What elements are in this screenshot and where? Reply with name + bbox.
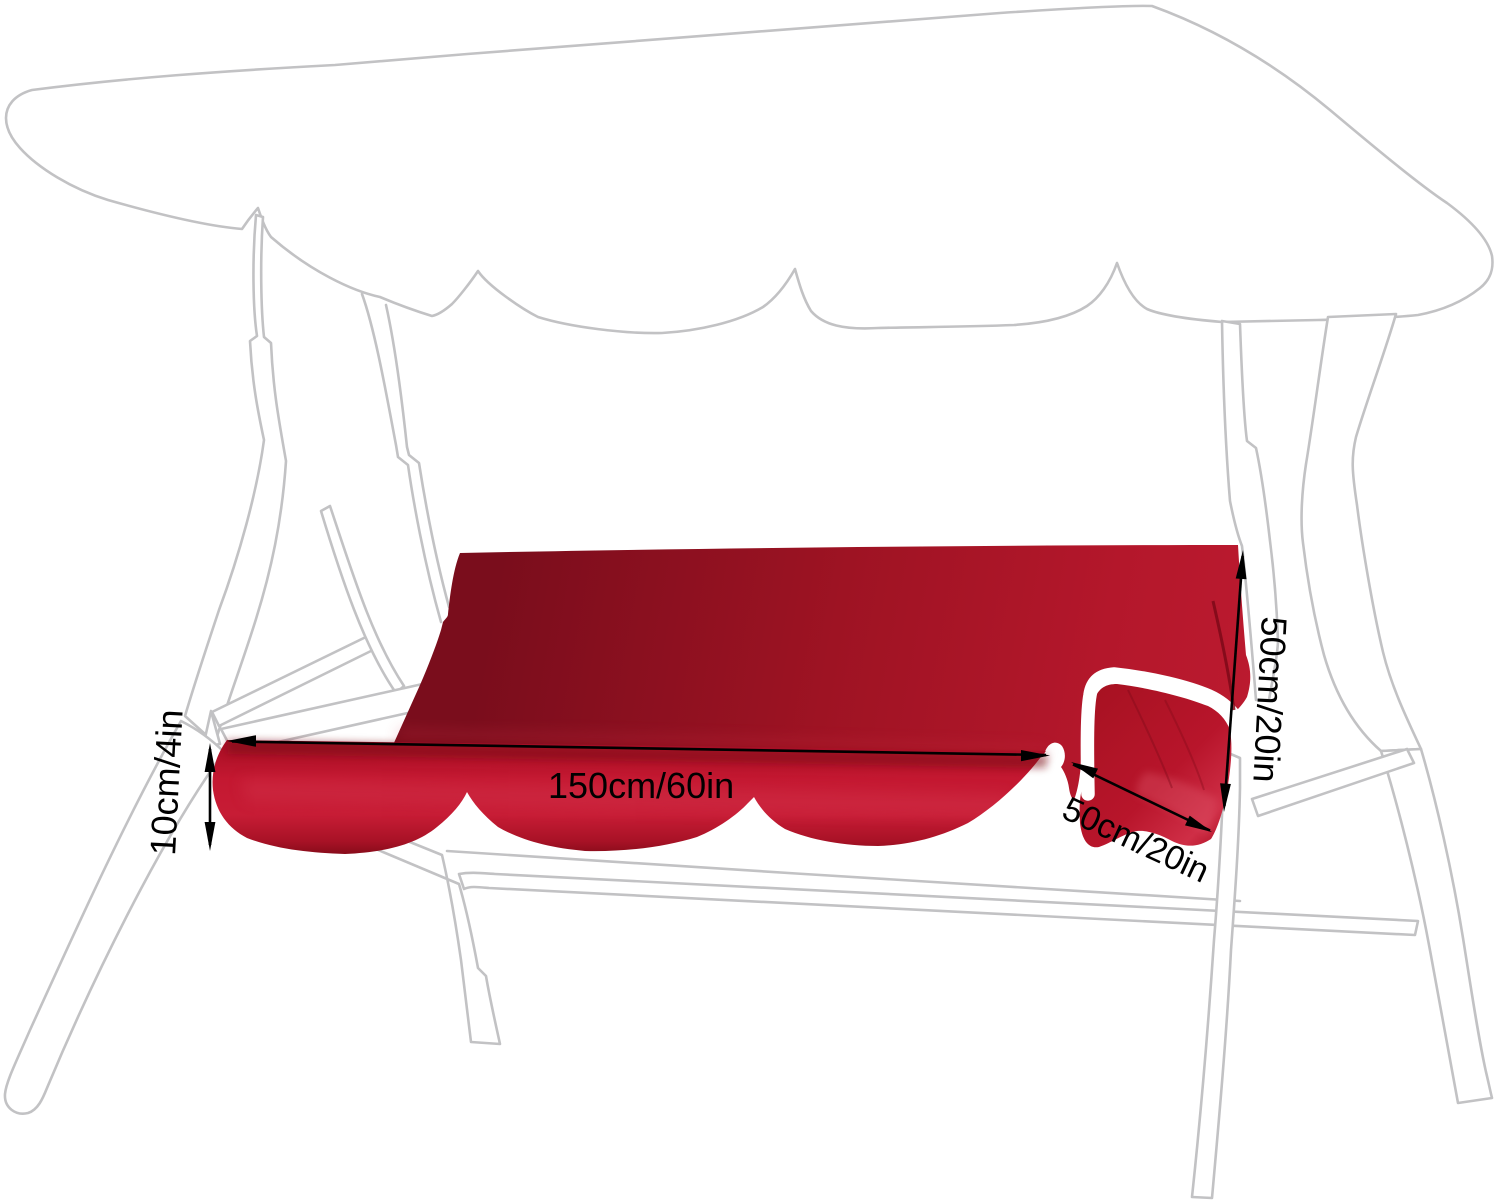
svg-text:50cm/20in: 50cm/20in: [1245, 616, 1295, 784]
svg-text:10cm/4in: 10cm/4in: [142, 708, 191, 856]
svg-text:150cm/60in: 150cm/60in: [548, 765, 734, 806]
